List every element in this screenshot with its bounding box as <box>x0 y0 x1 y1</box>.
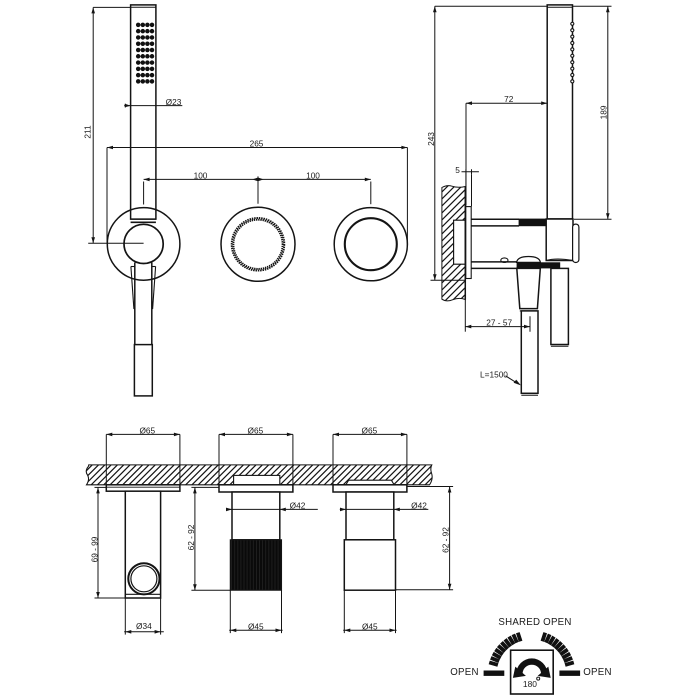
svg-text:Ø65: Ø65 <box>248 426 264 436</box>
svg-text:62 - 92: 62 - 92 <box>186 524 196 550</box>
svg-text:SHARED OPEN: SHARED OPEN <box>498 617 571 628</box>
svg-text:OPEN: OPEN <box>450 667 478 678</box>
svg-text:Ø65: Ø65 <box>139 426 155 436</box>
svg-text:62 - 92: 62 - 92 <box>441 527 451 553</box>
svg-text:189: 189 <box>599 105 609 119</box>
svg-text:Ø42: Ø42 <box>411 501 427 511</box>
svg-text:Ø45: Ø45 <box>362 621 378 631</box>
svg-text:180: 180 <box>523 679 537 689</box>
svg-text:27 - 57: 27 - 57 <box>486 317 512 327</box>
svg-text:100: 100 <box>194 171 208 181</box>
svg-text:L=1500: L=1500 <box>480 370 508 380</box>
svg-text:Ø65: Ø65 <box>362 426 378 436</box>
svg-text:Ø42: Ø42 <box>290 501 306 511</box>
svg-text:265: 265 <box>250 138 264 148</box>
svg-text:69 - 99: 69 - 99 <box>90 536 100 562</box>
svg-text:243: 243 <box>426 132 436 146</box>
svg-text:5: 5 <box>455 165 460 175</box>
svg-text:Ø45: Ø45 <box>248 621 264 631</box>
svg-text:OPEN: OPEN <box>583 667 611 678</box>
svg-text:Ø23: Ø23 <box>166 97 182 107</box>
svg-text:211: 211 <box>83 125 93 139</box>
svg-text:72: 72 <box>504 94 514 104</box>
svg-text:Ø34: Ø34 <box>136 621 152 631</box>
svg-text:100: 100 <box>306 171 320 181</box>
